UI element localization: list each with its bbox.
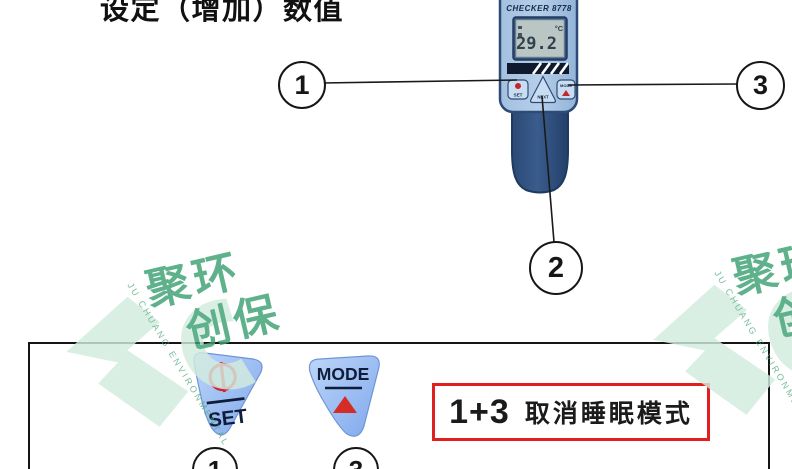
- callout-2: 2: [529, 241, 583, 295]
- callout-lines: [0, 0, 792, 469]
- callout-1: 1: [278, 61, 326, 109]
- manual-page: 设定（增加）数值 聚环 创保 JU CHUANG ENVIRONMENTAL 聚…: [0, 0, 792, 469]
- callout-3: 3: [736, 61, 785, 110]
